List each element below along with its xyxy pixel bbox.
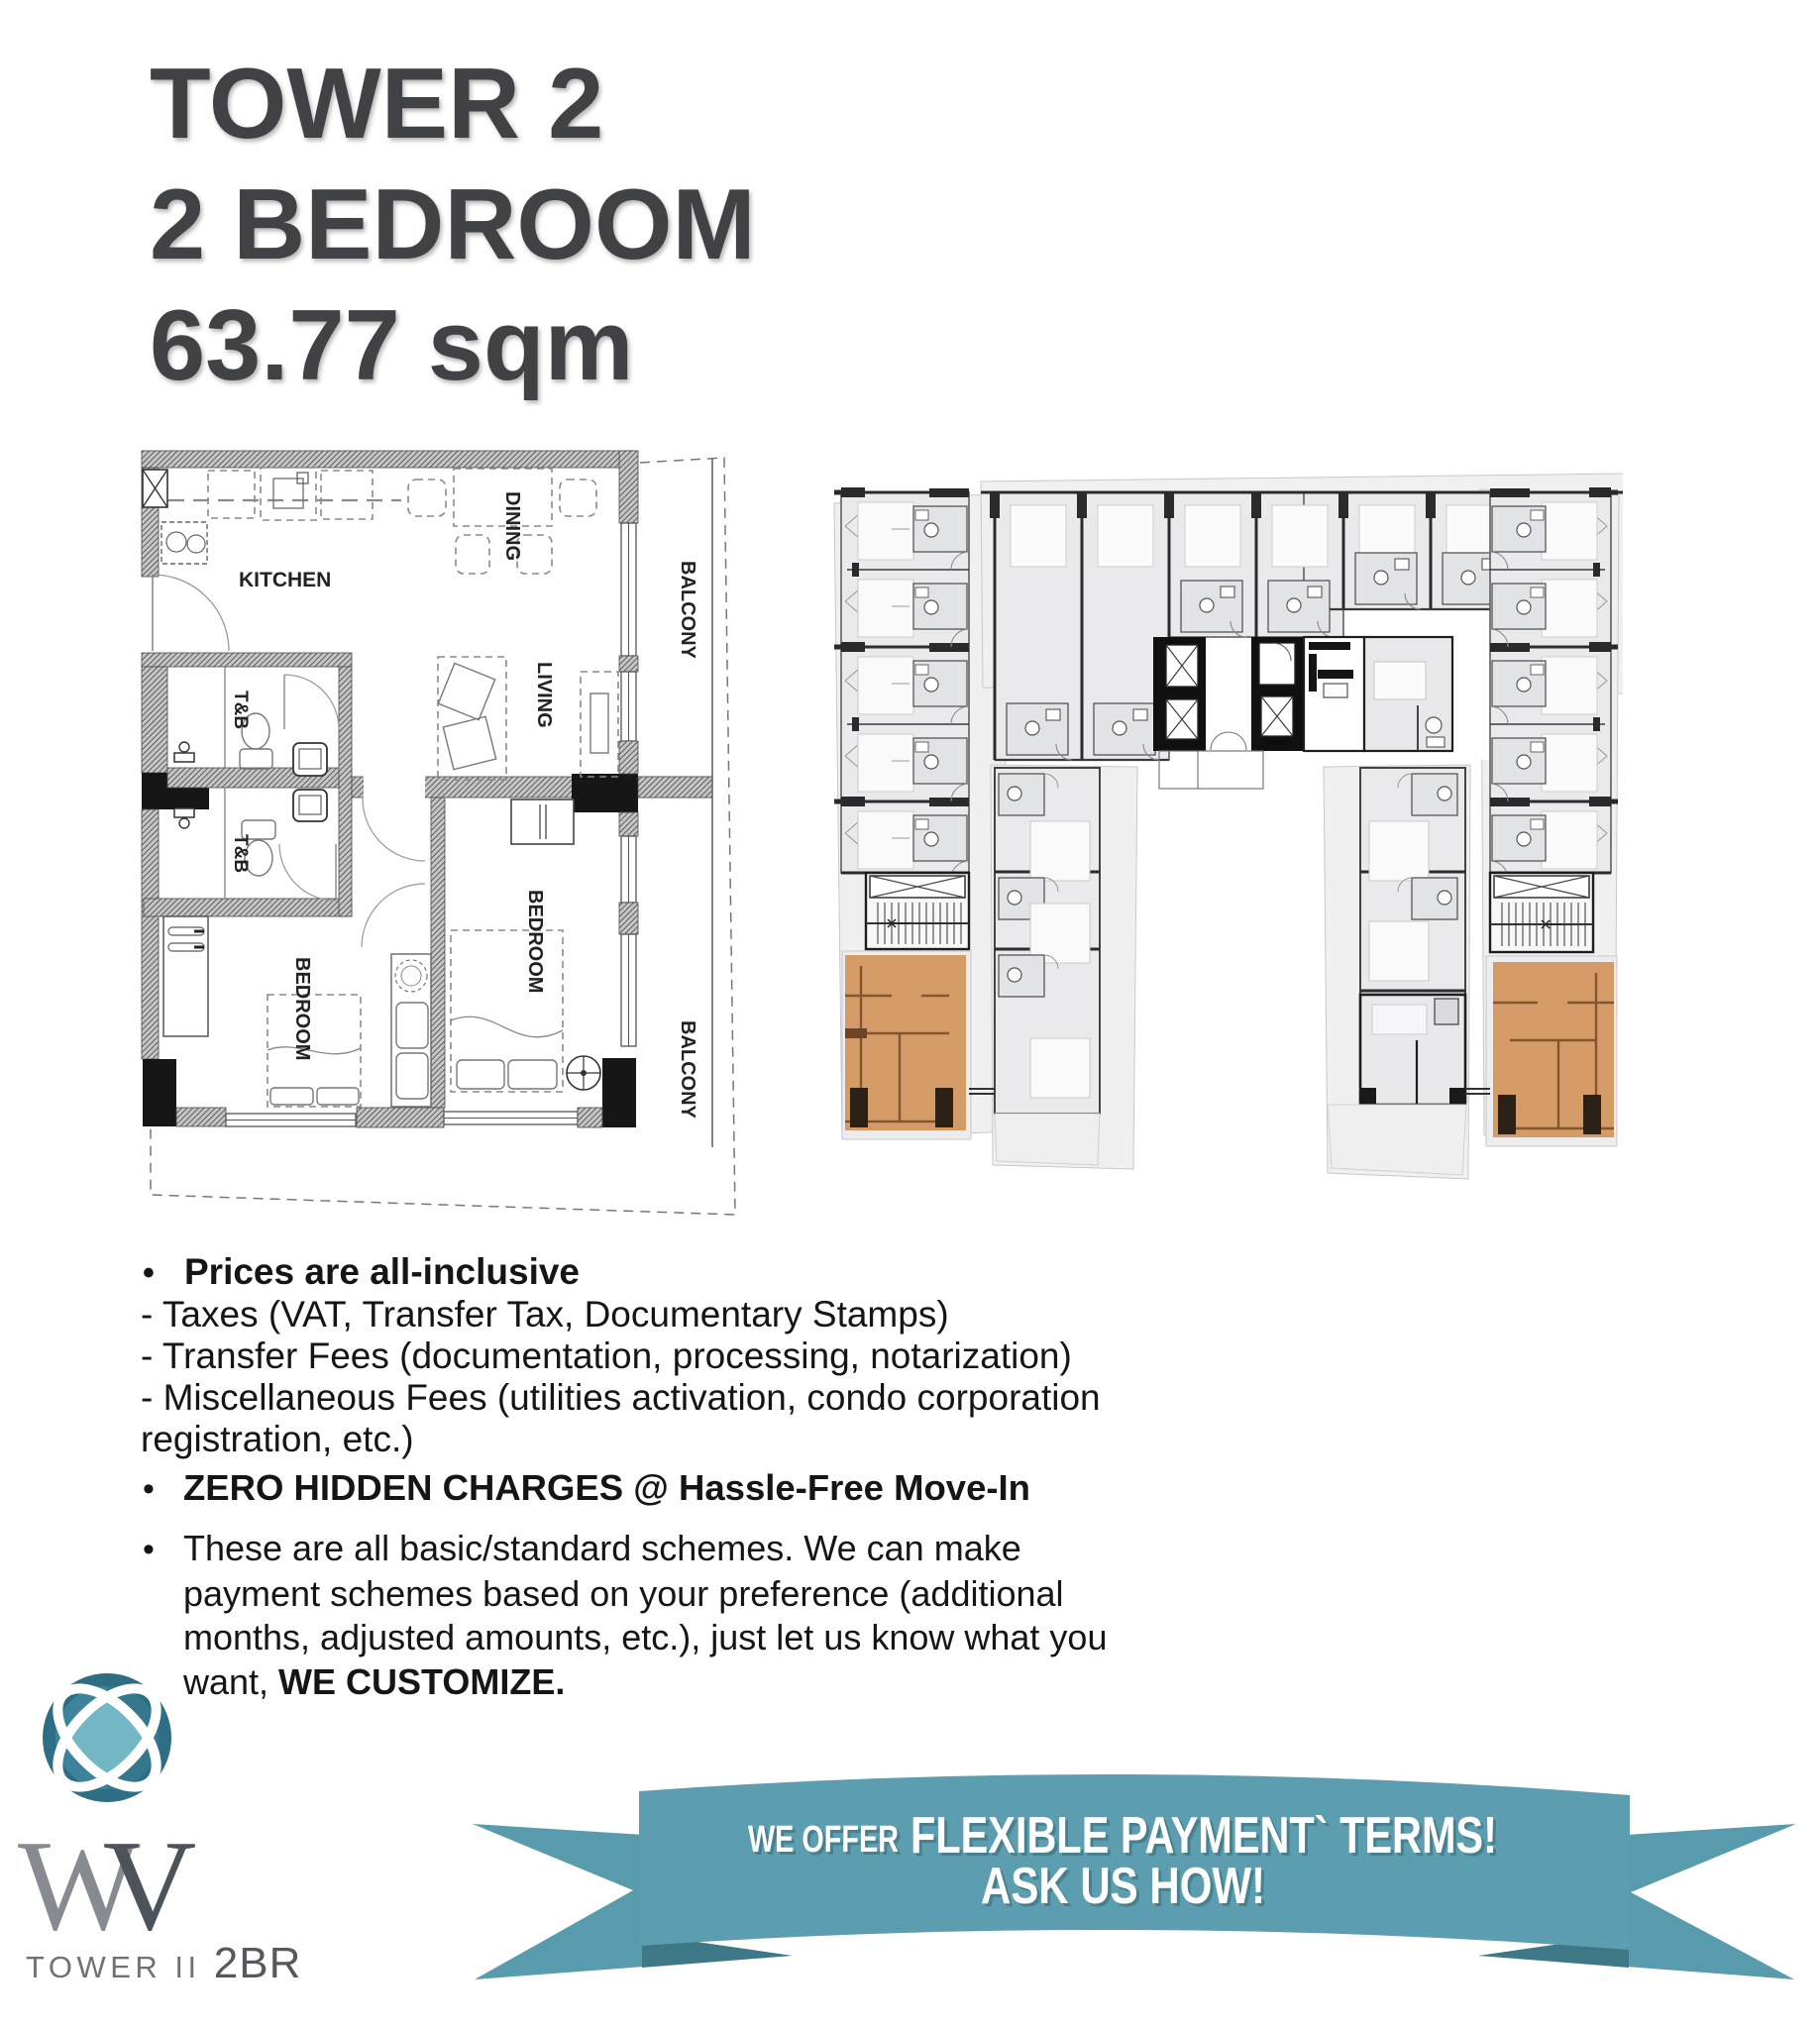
svg-text:BEDROOM: BEDROOM	[291, 957, 313, 1060]
svg-text:T&B: T&B	[230, 691, 251, 729]
svg-text:WE OFFER: WE OFFER	[748, 1819, 899, 1861]
svg-text:KITCHEN: KITCHEN	[239, 569, 331, 591]
svg-text:BALCONY: BALCONY	[677, 561, 698, 660]
svg-text:ASK US HOW!: ASK US HOW!	[981, 1858, 1265, 1915]
svg-text:T&B: T&B	[230, 834, 251, 873]
svg-text:FLEXIBLE PAYMENT` TERMS!: FLEXIBLE PAYMENT` TERMS!	[910, 1807, 1497, 1865]
svg-text:BEDROOM: BEDROOM	[524, 890, 546, 993]
svg-text:LIVING: LIVING	[533, 662, 555, 728]
svg-text:DINING: DINING	[501, 491, 523, 561]
svg-text:BALCONY: BALCONY	[677, 1020, 698, 1120]
